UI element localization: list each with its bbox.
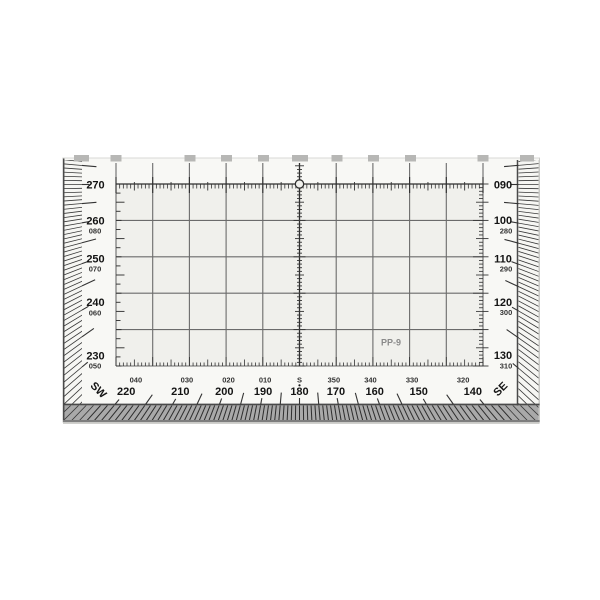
bottom-recip-label-S: S xyxy=(297,375,302,384)
bottom-recip-label-350: 350 xyxy=(328,375,341,384)
bottom-recip-label-020: 020 xyxy=(222,375,235,384)
model-label: PP-9 xyxy=(381,338,401,348)
right-bearing-label-100: 100 xyxy=(494,215,512,227)
right-recip-label-300: 300 xyxy=(500,308,513,317)
right-bearing-label-110: 110 xyxy=(494,253,512,265)
left-bearing-label-230: 230 xyxy=(86,350,104,362)
bottom-recip-label-340: 340 xyxy=(364,375,377,384)
bottom-bearing-label-200: 200 xyxy=(215,386,233,398)
bottom-bearing-label-150: 150 xyxy=(410,386,428,398)
bottom-recip-label-320: 320 xyxy=(457,375,470,384)
bottom-recip-label-330: 330 xyxy=(406,375,419,384)
left-recip-label-070: 070 xyxy=(89,265,102,274)
left-bearing-label-240: 240 xyxy=(86,297,104,309)
bottom-recip-label-040: 040 xyxy=(130,375,143,384)
left-recip-label-060: 060 xyxy=(89,308,102,317)
bottom-bearing-label-220: 220 xyxy=(117,386,135,398)
left-recip-label-080: 080 xyxy=(89,226,102,235)
bottom-bearing-label-170: 170 xyxy=(327,386,345,398)
left-bearing-label-260: 260 xyxy=(86,215,104,227)
bottom-bearing-label-140: 140 xyxy=(464,386,482,398)
bottom-bearing-label-210: 210 xyxy=(171,386,189,398)
center-origin-circle xyxy=(295,180,303,188)
right-recip-label-280: 280 xyxy=(500,226,513,235)
right-recip-label-310: 310 xyxy=(500,361,513,370)
bottom-bearing-label-160: 160 xyxy=(365,386,383,398)
right-bearing-label-120: 120 xyxy=(494,297,512,309)
bottom-recip-label-030: 030 xyxy=(181,375,194,384)
left-bearing-label-270: 270 xyxy=(86,179,104,191)
bottom-bearing-label-180: 180 xyxy=(290,386,308,398)
plotter-svg: 2702600802500702400602300500901002801102… xyxy=(0,0,600,600)
south-dot xyxy=(298,384,300,386)
left-bearing-label-250: 250 xyxy=(86,254,104,266)
navigation-plotter-image: 2702600802500702400602300500901002801102… xyxy=(0,0,600,600)
left-recip-label-050: 050 xyxy=(89,362,102,371)
right-recip-label-290: 290 xyxy=(500,265,513,274)
right-bearing-label-090: 090 xyxy=(494,179,512,191)
right-bearing-label-130: 130 xyxy=(494,350,512,362)
bottom-recip-label-010: 010 xyxy=(259,375,272,384)
bottom-bearing-label-190: 190 xyxy=(254,386,272,398)
